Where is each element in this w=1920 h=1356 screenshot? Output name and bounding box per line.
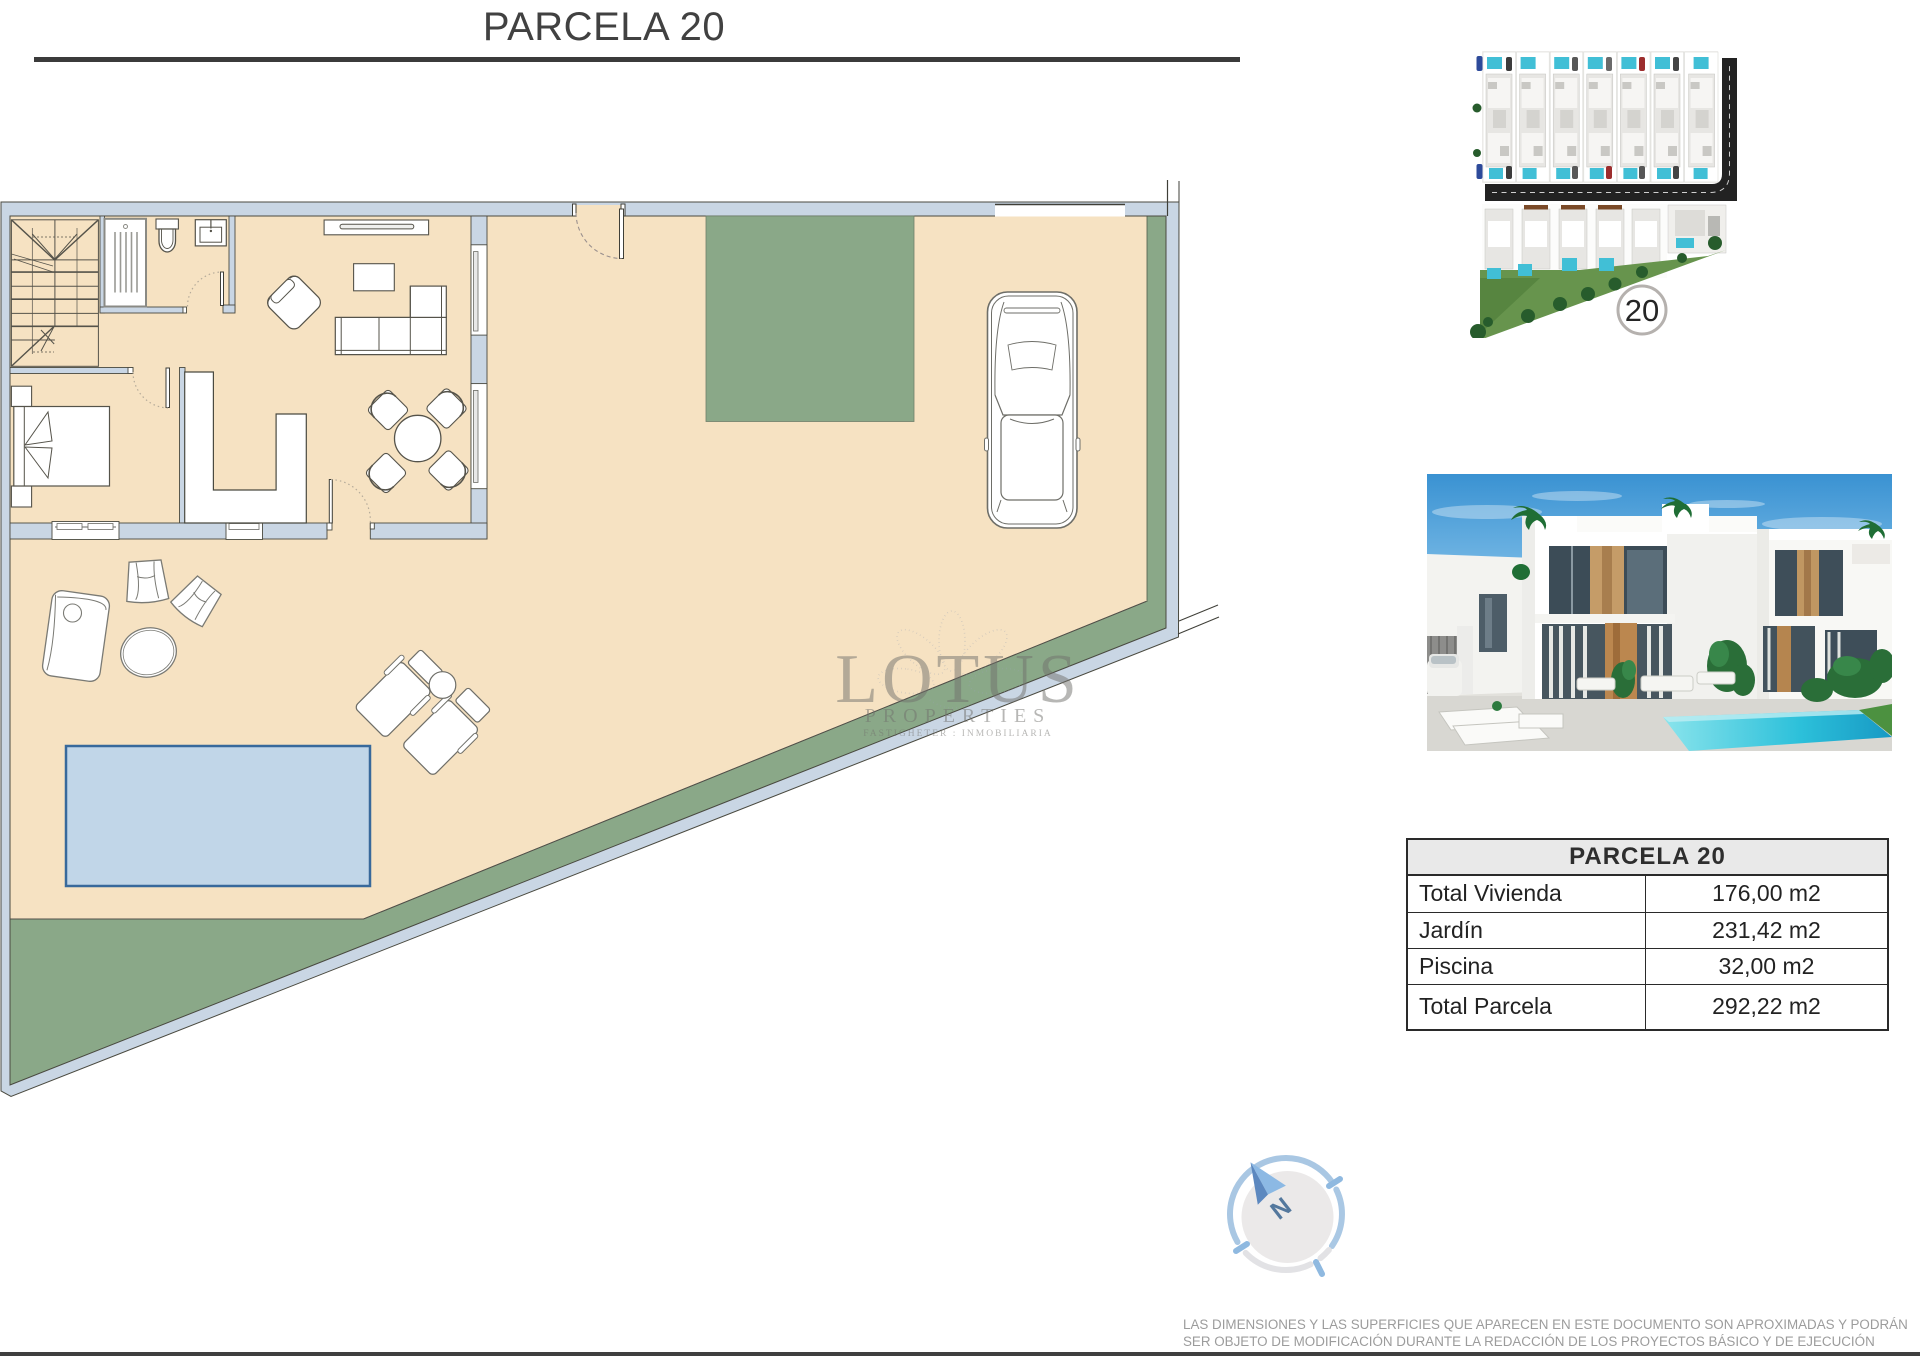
svg-text:FASTIGHETER : INMOBILIARIA: FASTIGHETER : INMOBILIARIA [863, 729, 1053, 739]
svg-text:20: 20 [1625, 293, 1659, 328]
svg-text:PROPERTIES: PROPERTIES [865, 705, 1052, 727]
